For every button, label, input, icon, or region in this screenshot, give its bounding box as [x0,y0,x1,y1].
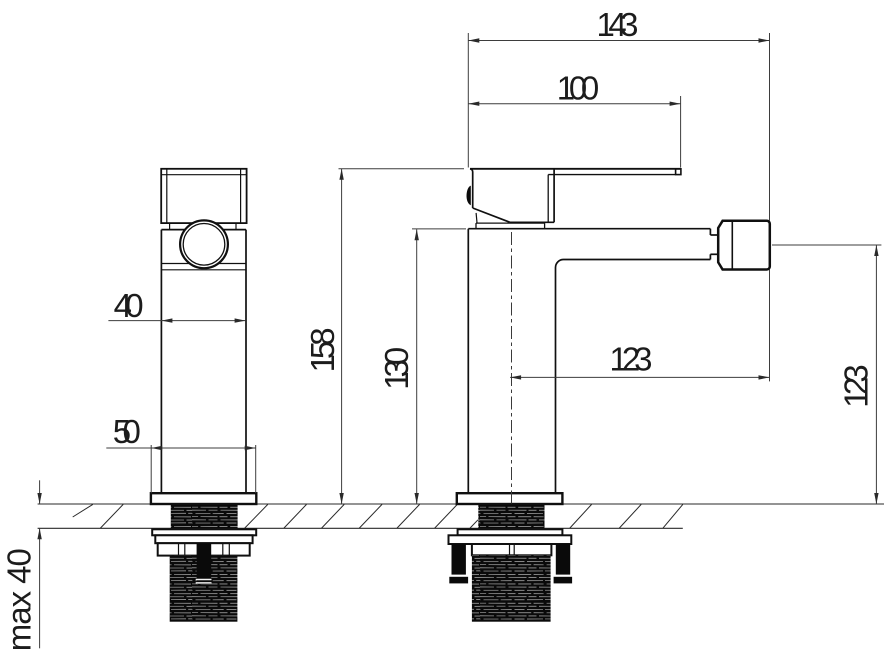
svg-text:50: 50 [113,413,141,450]
svg-text:40: 40 [114,287,144,324]
svg-text:100: 100 [557,70,600,107]
svg-text:158: 158 [304,327,341,372]
svg-text:130: 130 [378,347,415,390]
svg-text:max 40: max 40 [1,548,38,651]
svg-text:123: 123 [838,364,875,408]
svg-text:123: 123 [610,340,653,377]
svg-text:143: 143 [597,6,639,43]
